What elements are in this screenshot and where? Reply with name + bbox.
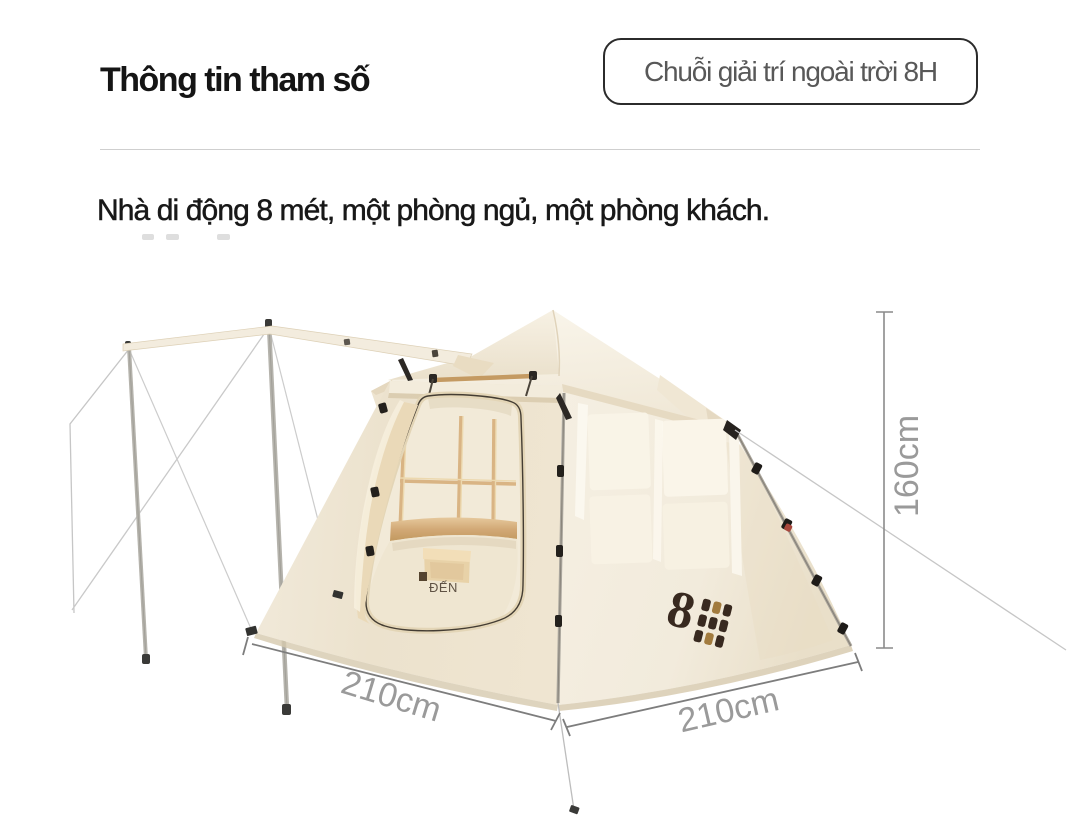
svg-text:160cm: 160cm xyxy=(888,415,926,517)
svg-text:ĐẾN: ĐẾN xyxy=(429,580,458,595)
